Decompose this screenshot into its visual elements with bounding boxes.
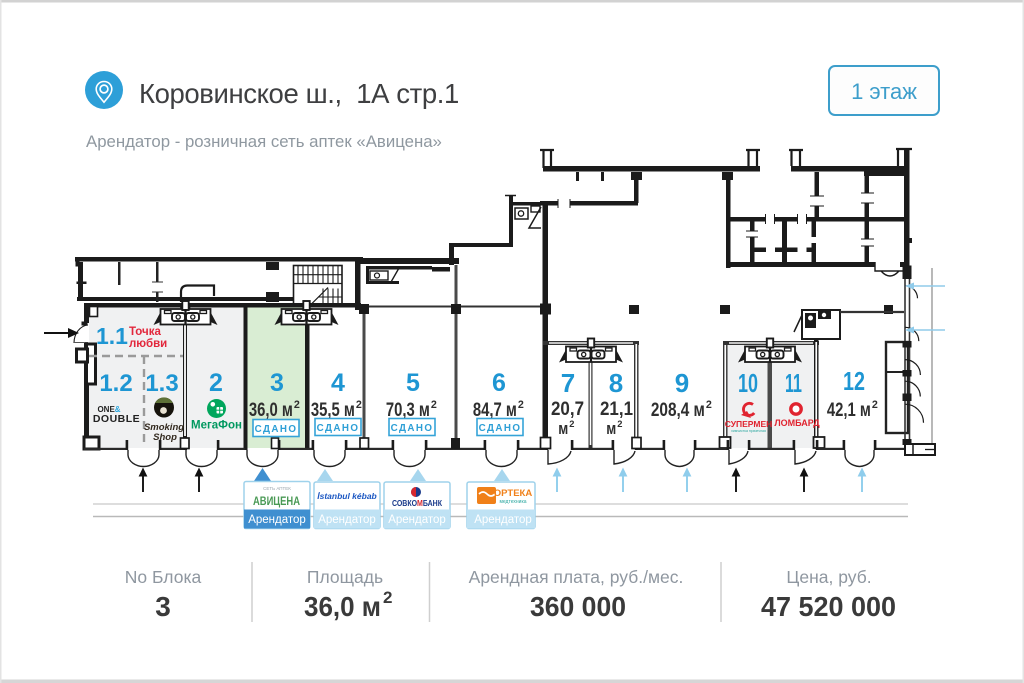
svg-text:химчистка прачечная: химчистка прачечная <box>731 429 766 433</box>
svg-text:Shop: Shop <box>153 432 177 443</box>
svg-text:2: 2 <box>383 588 392 607</box>
svg-text:6: 6 <box>492 369 506 397</box>
svg-text:медтехника: медтехника <box>499 499 526 505</box>
svg-text:360 000: 360 000 <box>530 591 626 622</box>
svg-text:20,7: 20,7 <box>551 399 584 420</box>
svg-text:СДАНО: СДАНО <box>255 424 298 435</box>
svg-text:СЕТЬ АПТЕК: СЕТЬ АПТЕК <box>263 486 291 491</box>
svg-text:Точка: Точка <box>129 326 161 338</box>
svg-text:любви: любви <box>129 338 167 350</box>
svg-text:10: 10 <box>738 368 758 398</box>
svg-text:2: 2 <box>872 399 878 411</box>
svg-text:2: 2 <box>706 399 712 411</box>
svg-text:1.2: 1.2 <box>99 370 132 397</box>
svg-text:Арендатор: Арендатор <box>318 514 376 526</box>
svg-text:2: 2 <box>431 399 437 411</box>
svg-text:8: 8 <box>609 368 623 398</box>
svg-text:1.3: 1.3 <box>145 370 178 397</box>
svg-text:7: 7 <box>561 368 575 398</box>
svg-text:ОРТЕКА: ОРТЕКА <box>494 488 533 499</box>
svg-text:1 этаж: 1 этаж <box>851 79 917 104</box>
svg-text:СДАНО: СДАНО <box>317 423 360 434</box>
svg-text:Арендатор: Арендатор <box>388 514 446 526</box>
svg-text:DOUBLE: DOUBLE <box>93 413 140 425</box>
svg-text:м: м <box>606 419 616 438</box>
svg-text:Цена, руб.: Цена, руб. <box>786 567 871 587</box>
svg-text:2: 2 <box>356 399 362 411</box>
svg-text:Арендатор: Арендатор <box>474 514 532 526</box>
svg-text:9: 9 <box>675 368 689 398</box>
svg-text:208,4 м: 208,4 м <box>651 399 705 421</box>
svg-text:СОВКОМБАНК: СОВКОМБАНК <box>392 499 442 508</box>
svg-text:Коровинское ш., 1А стр.1: Коровинское ш., 1А стр.1 <box>139 78 459 109</box>
svg-text:42,1 м: 42,1 м <box>827 399 871 421</box>
svg-text:No Блока: No Блока <box>125 567 202 587</box>
svg-text:СДАНО: СДАНО <box>479 423 522 434</box>
svg-text:2: 2 <box>569 419 574 429</box>
svg-text:Арендатор: Арендатор <box>248 514 306 526</box>
svg-text:Арендная плата, руб./мес.: Арендная плата, руб./мес. <box>469 567 684 587</box>
svg-text:36,0 м: 36,0 м <box>304 591 381 622</box>
svg-text:Арендатор - розничная сеть апт: Арендатор - розничная сеть аптек «Авицен… <box>86 132 442 151</box>
svg-text:АВИЦЕНА: АВИЦЕНА <box>253 494 300 508</box>
svg-text:2: 2 <box>209 369 223 397</box>
svg-text:36,0 м: 36,0 м <box>249 399 293 421</box>
svg-text:21,1: 21,1 <box>600 399 633 420</box>
svg-text:СДАНО: СДАНО <box>391 423 434 434</box>
svg-text:2: 2 <box>518 399 524 411</box>
svg-text:Площадь: Площадь <box>307 567 383 587</box>
svg-text:3: 3 <box>270 369 284 397</box>
svg-text:5: 5 <box>406 369 420 397</box>
svg-text:МегаФон: МегаФон <box>191 420 242 432</box>
svg-text:3: 3 <box>155 591 171 622</box>
svg-text:11: 11 <box>785 368 802 398</box>
svg-text:12: 12 <box>843 366 865 396</box>
svg-text:4: 4 <box>331 369 345 397</box>
svg-text:47 520 000: 47 520 000 <box>761 591 896 622</box>
svg-text:2: 2 <box>617 419 622 429</box>
svg-text:2: 2 <box>294 399 300 411</box>
svg-text:м: м <box>558 419 568 438</box>
svg-text:İstanbul kébab: İstanbul kébab <box>317 491 377 501</box>
svg-text:1.1: 1.1 <box>96 323 128 349</box>
svg-text:СУПЕРМЕН: СУПЕРМЕН <box>725 419 773 429</box>
svg-text:ЛОМБАРД: ЛОМБАРД <box>774 418 820 428</box>
